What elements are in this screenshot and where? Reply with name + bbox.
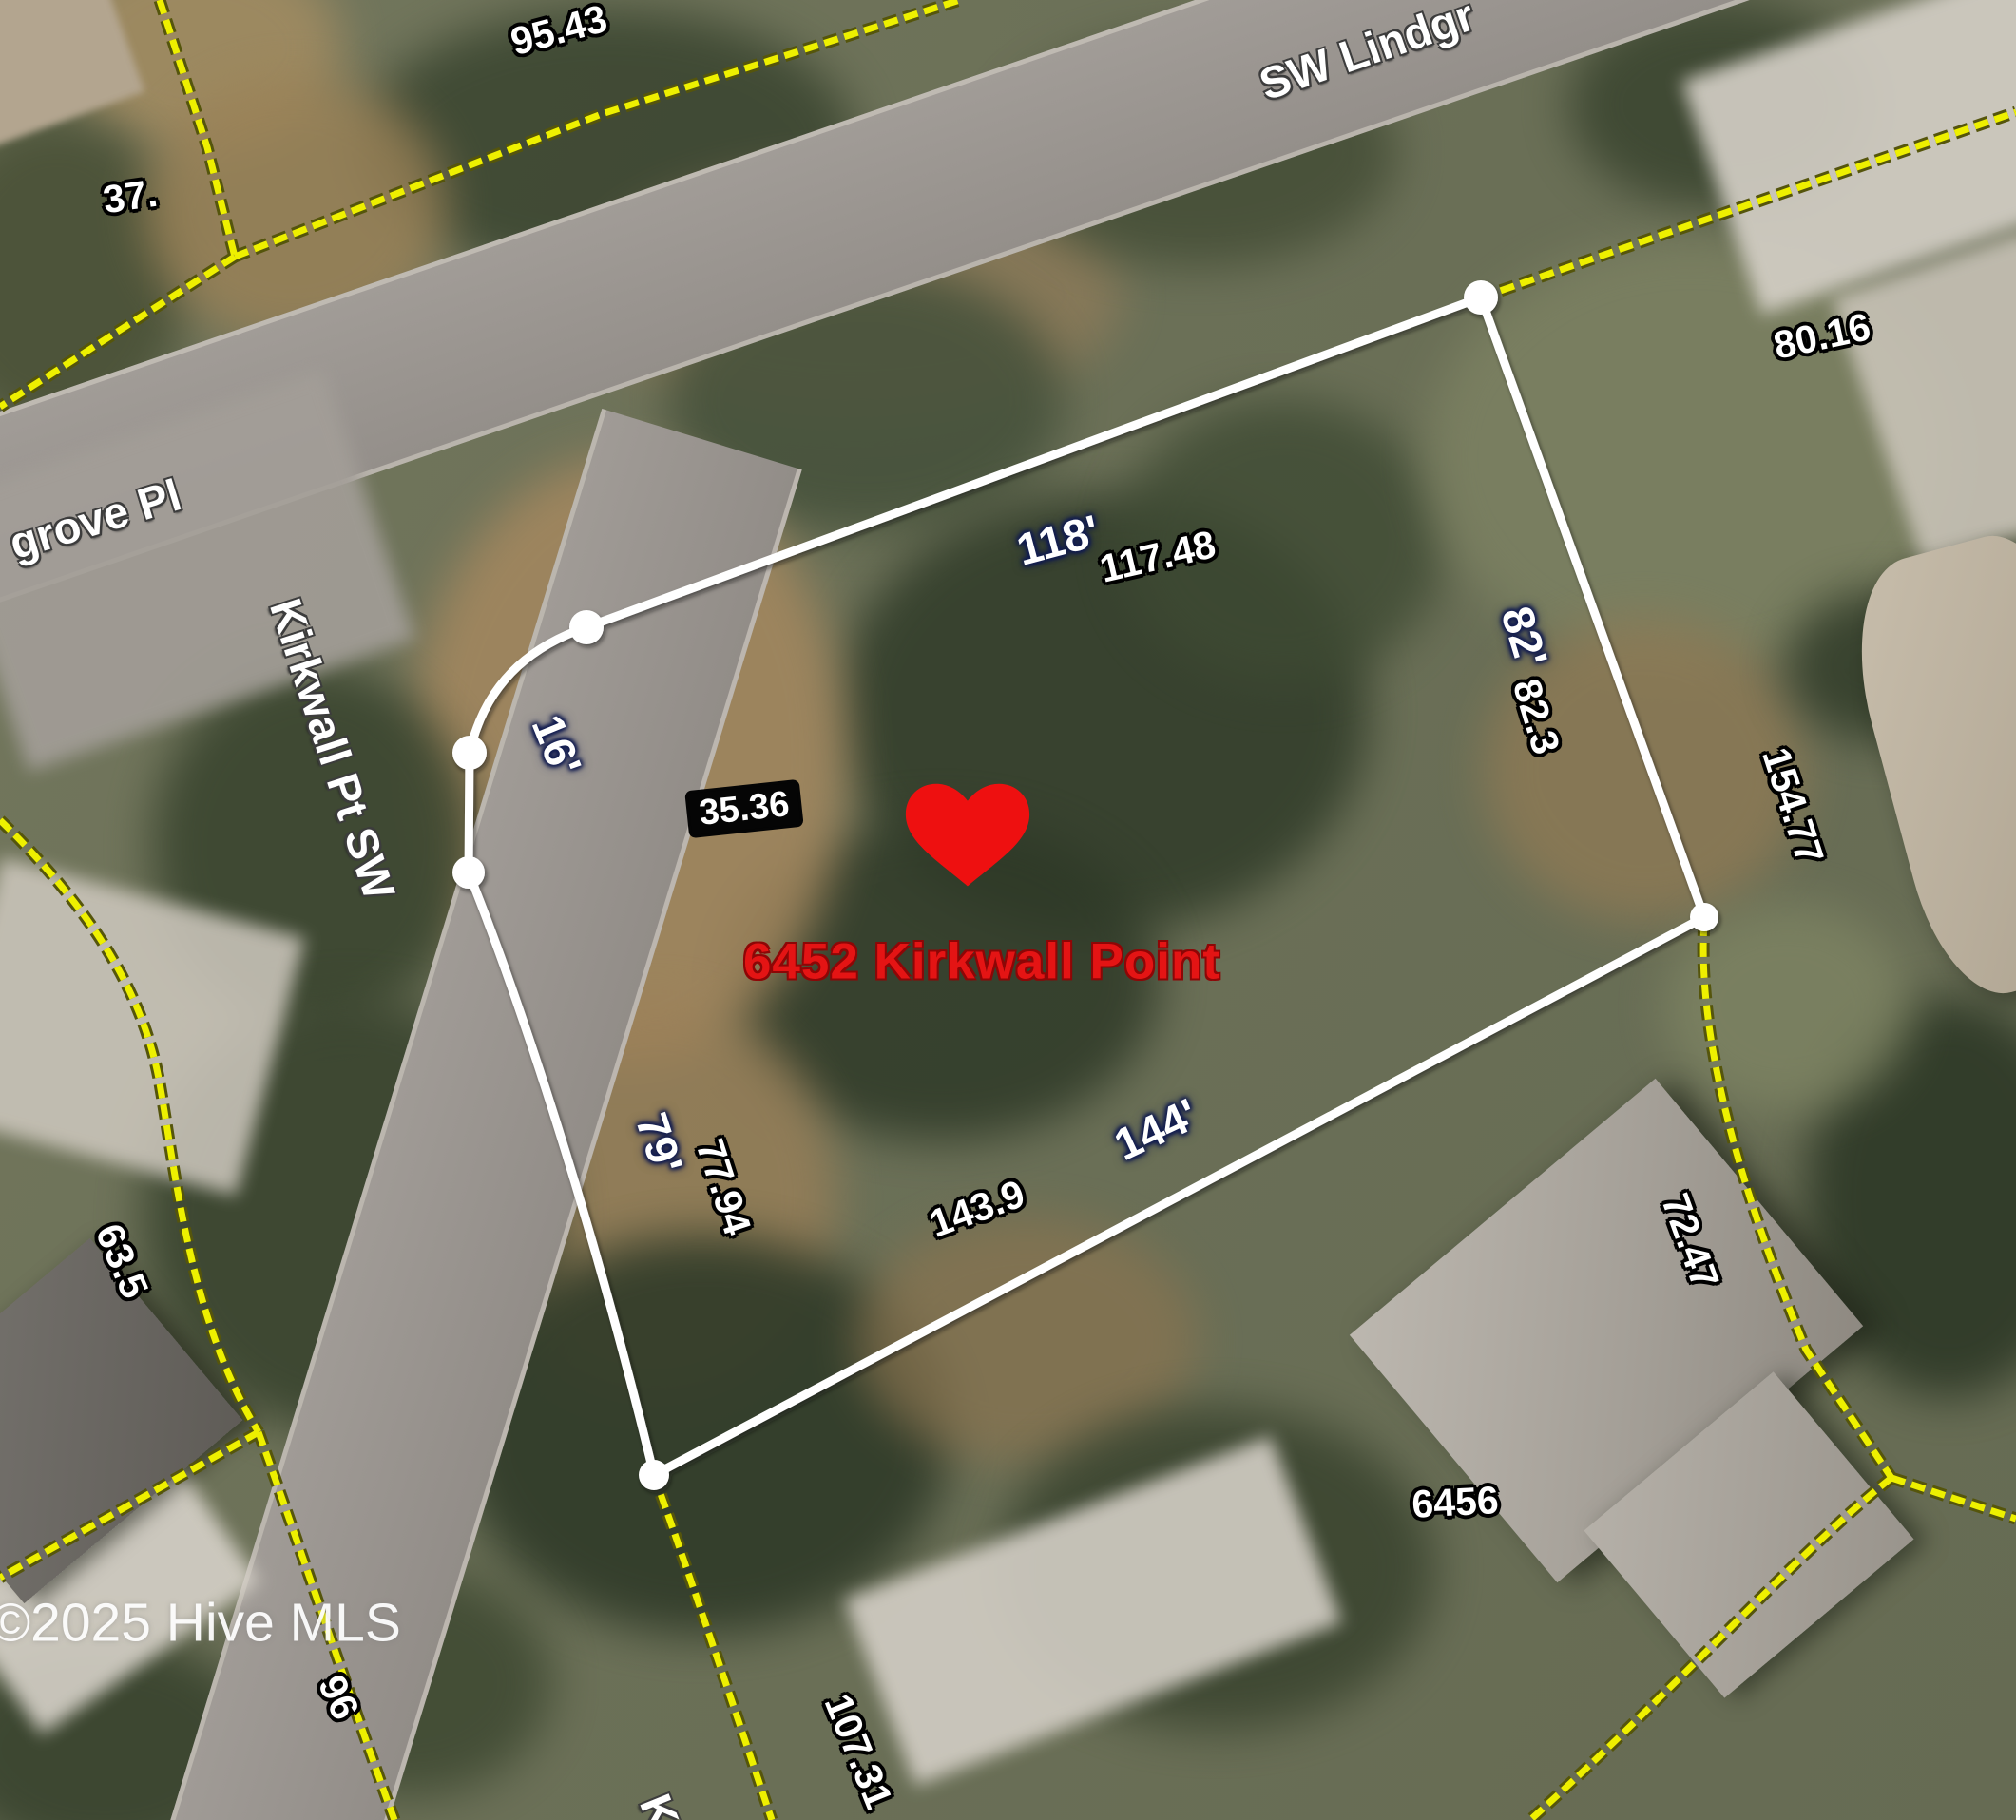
parcel-vertex-dot	[1464, 280, 1498, 315]
parcel-overlay	[0, 0, 2016, 1820]
parcel-vertex-dot	[452, 736, 487, 770]
heart-icon	[906, 784, 1029, 887]
neighbor-dim: 37.	[101, 174, 160, 220]
aerial-parcel-map: 118' 117.48 82' 82.3 144' 143.9 79' 77.9…	[0, 0, 2016, 1820]
parcel-vertex-dot	[452, 856, 485, 889]
mls-watermark: ©2025 Hive MLS	[0, 1597, 401, 1651]
parcel-vertex-dot	[569, 610, 604, 644]
parcel-vertex-dot	[1690, 903, 1718, 931]
property-address-label: 6452 Kirkwall Point	[743, 937, 1220, 987]
subject-parcel-boundary	[452, 280, 1718, 1490]
neighbor-house-number: 6456	[1411, 1481, 1499, 1524]
parcel-vertex-dot	[639, 1460, 669, 1490]
